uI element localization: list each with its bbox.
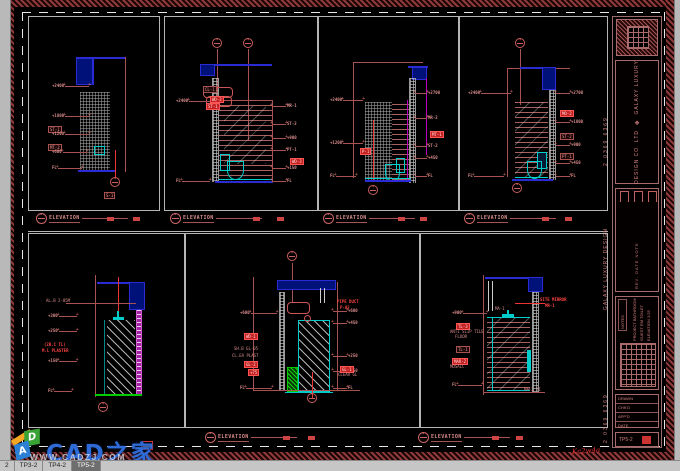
dimension-+2400: +2400 <box>330 98 363 102</box>
dimension-+2700: +2700 <box>556 91 583 95</box>
elevation-marker-icon <box>464 213 475 224</box>
dim-line <box>272 168 286 169</box>
note-text: SITE MIRROR <box>540 298 567 302</box>
dim-line <box>474 176 504 177</box>
note-text: MR-1 <box>545 304 555 308</box>
scale-mark <box>253 217 260 221</box>
detail-callout-icon <box>512 183 522 193</box>
dim-line <box>59 316 77 317</box>
dimension-+2700: +2700 <box>415 91 440 95</box>
material-tag-S-1: S-1 <box>104 192 115 199</box>
dim-line <box>65 86 89 87</box>
note-text: (2B.C TL) <box>44 343 66 347</box>
dim-line <box>54 391 72 392</box>
dim-label: +450 <box>348 321 358 325</box>
dim-line <box>415 118 427 119</box>
dimension-FL: FL <box>333 386 353 390</box>
material-tag-ST-2: ST-2 <box>560 133 574 140</box>
dimension-FL: FL <box>52 166 82 170</box>
dim-line <box>333 356 347 357</box>
dimension-+2400: +2400 <box>52 84 89 88</box>
dim-line <box>246 388 272 389</box>
elevation-marker-icon <box>170 213 181 224</box>
dim-line <box>556 93 570 94</box>
dimension-FL: FL <box>272 179 292 183</box>
dim-line <box>182 181 210 182</box>
dimension-+450: +450 <box>333 321 358 325</box>
note-text: MOSAIC <box>450 365 464 369</box>
dimension-FL: FL <box>240 386 272 390</box>
dim-label: +1800 <box>571 120 583 124</box>
elevation-label: ELEVATION <box>336 215 367 223</box>
dim-line <box>58 168 82 169</box>
logo-cube-face-a: A <box>14 441 31 461</box>
dimension-+1800: +1800 <box>556 120 583 124</box>
layout-tab-bar: 2TP3-2TP4-2TP5-2 <box>0 460 680 471</box>
elevation-marker-icon <box>36 213 47 224</box>
dimension-+250: +250 <box>333 354 358 358</box>
dimension-FL: FL <box>468 174 504 178</box>
scale-mark <box>398 217 405 221</box>
dimension-FL: FL <box>415 174 433 178</box>
dim-line <box>481 93 511 94</box>
elevation-label: ELEVATION <box>183 215 214 223</box>
note-text: AL.B 2-05M <box>46 299 70 303</box>
dim-line <box>343 143 363 144</box>
dim-line <box>336 176 356 177</box>
scale-mark <box>492 436 499 440</box>
dim-line <box>556 122 570 123</box>
dim-label: +600 <box>348 309 358 313</box>
material-tag-MO-2: MO-2 <box>560 110 574 117</box>
dimension-+600: +600 <box>240 311 277 315</box>
dim-line <box>458 385 482 386</box>
label-underline <box>464 437 510 438</box>
material-tag-WD-1: WD-1 <box>244 333 258 340</box>
scale-mark <box>308 436 315 440</box>
dim-line <box>463 313 487 314</box>
scale-mark <box>565 217 572 221</box>
dimension-FL: FL <box>330 174 356 178</box>
note-text: PIPE DUCT <box>337 300 359 304</box>
material-tag-WD-3: WD-3 <box>290 158 304 165</box>
dim-label: ST-2 <box>287 122 297 126</box>
dim-label: +450 <box>571 161 581 165</box>
dim-line <box>272 138 286 139</box>
scale-mark <box>107 217 114 221</box>
note-text: FLOOR <box>455 335 467 339</box>
dim-line <box>415 176 427 177</box>
dim-line <box>415 158 427 159</box>
dimension-FL: FL <box>176 179 210 183</box>
dim-line <box>59 361 77 362</box>
elevation-label: ELEVATION <box>431 434 462 442</box>
annotation-layer: +2400+1800ST-1+1200MT-2+600FLS-1ELEVATIO… <box>0 0 680 470</box>
dimension-+600: +600 <box>52 150 87 154</box>
elevation-label: ELEVATION <box>477 215 508 223</box>
elevation-label: ELEVATION <box>49 215 80 223</box>
dim-label: MR-2 <box>428 116 438 120</box>
dimension-+900: +900 <box>272 136 297 140</box>
material-tag-GL-2: GL-2 <box>244 361 258 368</box>
dimension-MR-2: MR-2 <box>415 116 438 120</box>
dimension-ST-2: ST-2 <box>415 144 438 148</box>
window-scrollbar-edge[interactable] <box>674 0 680 460</box>
dim-line <box>251 313 277 314</box>
material-tag-CL-1: CL-1 <box>203 86 217 93</box>
dim-line <box>343 100 363 101</box>
dim-line <box>556 163 570 164</box>
dim-line <box>556 145 570 146</box>
dim-line <box>556 176 570 177</box>
scale-mark <box>277 217 284 221</box>
note-text: MA-2 TI <box>524 388 541 392</box>
elevation-marker-icon <box>323 213 334 224</box>
dimension-ST-2: ST-2 <box>272 122 297 126</box>
dimension-+450: +450 <box>556 161 581 165</box>
window-left-edge <box>0 0 11 460</box>
scale-mark <box>542 217 549 221</box>
dim-label: +900 <box>571 143 581 147</box>
dim-line <box>333 323 347 324</box>
dim-label: MR-1 <box>287 104 297 108</box>
panel-title-elevation-2: ELEVATION <box>170 213 262 224</box>
note-text: MA-1 <box>495 307 505 311</box>
dim-label: PT-1 <box>287 148 297 152</box>
dimension-MR-1: MR-1 <box>272 104 297 108</box>
material-tag-MT-1: MT-1 <box>430 131 444 138</box>
dim-label: ST-2 <box>428 144 438 148</box>
elevation-marker-icon <box>205 432 216 443</box>
dim-line <box>59 331 77 332</box>
scale-mark <box>420 217 427 221</box>
dimension-FL: FL <box>556 174 576 178</box>
note-text: CLEAR GL <box>338 373 357 377</box>
detail-callout-icon <box>307 393 317 403</box>
note-text: SH.B GL-05 <box>234 347 258 351</box>
detail-callout-icon <box>98 402 108 412</box>
dimension-PT-1: PT-1 <box>272 148 297 152</box>
note-text: M.L PLASTER <box>42 349 69 353</box>
dimension-+150: +150 <box>48 359 77 363</box>
scale-mark <box>516 436 523 440</box>
dimension-+600: +600 <box>333 309 358 313</box>
dimension-+150: +150 <box>272 166 297 170</box>
dim-label: +150 <box>287 166 297 170</box>
note-text: CL.EA PLAST <box>232 354 259 358</box>
dimension-+900: +900 <box>452 311 487 315</box>
dimension-FL: FL <box>48 389 72 393</box>
dim-line <box>333 388 347 389</box>
dim-line <box>272 150 286 151</box>
dimension-+1200: +1200 <box>330 141 363 145</box>
autocad-viewport: { "window": { "tabs": [ {"label":"2","ac… <box>0 0 680 470</box>
dim-line <box>65 116 89 117</box>
dim-label: +2700 <box>571 91 583 95</box>
dim-label: +2700 <box>428 91 440 95</box>
material-tag-WD-2: WD-2 <box>210 96 224 103</box>
dim-label: +900 <box>287 136 297 140</box>
detail-callout-icon <box>212 38 222 48</box>
scale-mark <box>283 436 290 440</box>
material-tag-TL-1: TL-1 <box>456 346 470 353</box>
dim-line <box>272 106 286 107</box>
elevation-label: ELEVATION <box>218 434 249 442</box>
dim-label: +250 <box>348 354 358 358</box>
dim-line <box>272 181 286 182</box>
detail-callout-icon <box>243 38 253 48</box>
label-underline <box>369 218 415 219</box>
dim-label: +450 <box>428 156 438 160</box>
detail-callout-icon <box>110 177 120 187</box>
material-tag-ST-1: ST-1 <box>206 103 220 110</box>
dimension-+450: +450 <box>415 156 438 160</box>
detail-callout-icon <box>287 251 297 261</box>
dimension-+300: +300 <box>48 314 77 318</box>
dimension-+250: +250 <box>48 329 77 333</box>
label-underline <box>82 218 128 219</box>
material-tag-+75: +75 <box>248 369 259 376</box>
dimension-FL: FL <box>452 383 482 387</box>
elevation-marker-icon <box>418 432 429 443</box>
dim-line <box>333 311 347 312</box>
dimension-+900: +900 <box>556 143 581 147</box>
dimension-+1200: +1200 <box>52 132 89 136</box>
dim-line <box>63 152 87 153</box>
dim-line <box>415 146 427 147</box>
dim-line <box>272 124 286 125</box>
dim-line <box>415 93 427 94</box>
dimension-+2400: +2400 <box>468 91 511 95</box>
material-tag-P-1: P-1 <box>360 148 371 155</box>
scale-mark <box>133 217 140 221</box>
dim-line <box>65 134 89 135</box>
detail-callout-icon <box>515 38 525 48</box>
detail-callout-icon <box>368 185 378 195</box>
dimension-+1800: +1800 <box>52 114 89 118</box>
